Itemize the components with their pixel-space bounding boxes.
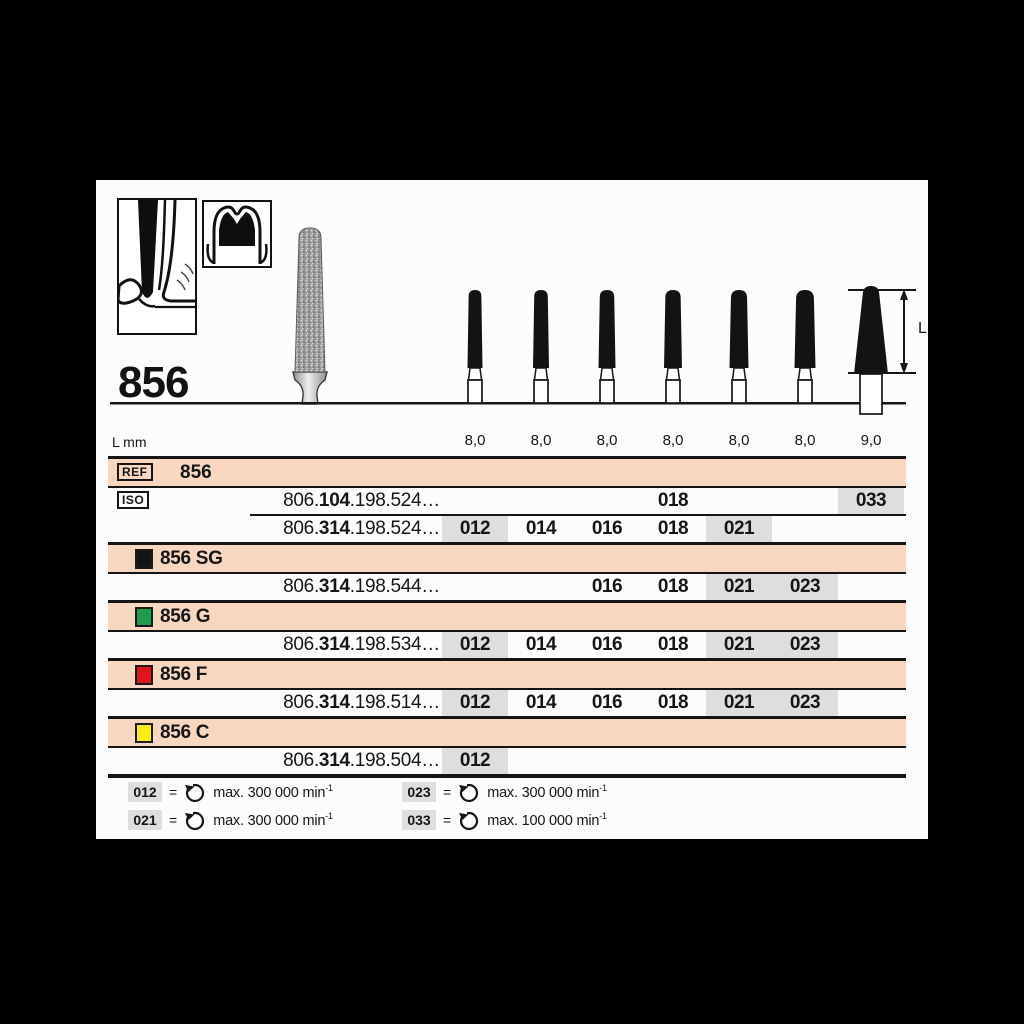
- size-cell: 016: [574, 516, 640, 542]
- size-cell: 033: [838, 488, 904, 514]
- iso-row-534: 806.314.198.534… 012 014 016 018 021 023: [108, 632, 906, 658]
- size-table: REF 856 ISO 806.104.198.524… 018 033 806…: [108, 456, 906, 778]
- variant-name: 856 F: [160, 664, 207, 686]
- iso-code: 806.314.198.504…: [208, 750, 440, 772]
- size-cell: 016: [574, 574, 640, 600]
- size-chip: 023: [402, 782, 436, 802]
- iso-code: 806.314.198.534…: [208, 634, 440, 656]
- legend-item-023: 023 = max. 300 000 min-1: [402, 780, 607, 804]
- catalog-page: L 856 L mm 8,0 8,0 8,0 8,0 8,0 8,0 9,0 R…: [96, 180, 928, 839]
- size-cell: 018: [640, 632, 706, 658]
- catalog-scan: L 856 L mm 8,0 8,0 8,0 8,0 8,0 8,0 9,0 R…: [0, 0, 1024, 1024]
- size-chip: 012: [128, 782, 162, 802]
- variant-name: 856 SG: [160, 548, 223, 570]
- size-cell: 018: [640, 516, 706, 542]
- size-cell: 021: [706, 574, 772, 600]
- length-value: 8,0: [706, 432, 772, 449]
- speed-text: max. 100 000 min-1: [487, 811, 607, 829]
- ref-tag: REF: [117, 463, 153, 481]
- length-value: 8,0: [508, 432, 574, 449]
- size-cell: 023: [772, 574, 838, 600]
- iso-code: 806.314.198.514…: [208, 692, 440, 714]
- iso-code: 806.104.198.524…: [208, 490, 440, 512]
- size-cell: 018: [640, 574, 706, 600]
- speed-text: max. 300 000 min-1: [213, 783, 333, 801]
- speed-text: max. 300 000 min-1: [487, 783, 607, 801]
- length-value: 9,0: [838, 432, 904, 449]
- length-row-label: L mm: [112, 434, 146, 450]
- length-dimension-label: L: [918, 320, 927, 338]
- grit-color-square-green: [135, 607, 153, 627]
- size-silhouettes: [96, 180, 928, 420]
- rotation-speed-icon: [184, 781, 206, 803]
- size-cell: 014: [508, 516, 574, 542]
- product-number-title: 856: [118, 358, 188, 408]
- variant-band-856c: 856 C: [108, 719, 906, 746]
- iso-row-544: 806.314.198.544… 016 018 021 023: [108, 574, 906, 600]
- size-cell: 021: [706, 516, 772, 542]
- length-value: 8,0: [772, 432, 838, 449]
- size-cell: 021: [706, 690, 772, 716]
- grit-color-square-black: [135, 549, 153, 569]
- size-cell: 023: [772, 690, 838, 716]
- iso-tag: ISO: [117, 491, 149, 509]
- rotation-speed-icon: [458, 781, 480, 803]
- size-cell: 012: [442, 632, 508, 658]
- size-cell: 018: [640, 488, 706, 514]
- length-value: 8,0: [574, 432, 640, 449]
- legend-item-021: 021 = max. 300 000 min-1: [128, 808, 333, 832]
- iso-code: 806.314.198.544…: [208, 576, 440, 598]
- legend-item-033: 033 = max. 100 000 min-1: [402, 808, 607, 832]
- size-cell: 018: [640, 690, 706, 716]
- size-cell: 012: [442, 690, 508, 716]
- equals-sign: =: [169, 784, 177, 800]
- iso-row-504: 806.314.198.504… 012: [108, 748, 906, 774]
- ref-band: REF 856: [108, 459, 906, 486]
- equals-sign: =: [443, 784, 451, 800]
- size-cell: 023: [772, 632, 838, 658]
- iso-row-514: 806.314.198.514… 012 014 016 018 021 023: [108, 690, 906, 716]
- size-cell: 016: [574, 690, 640, 716]
- iso-row-104: ISO 806.104.198.524… 018 033: [108, 488, 906, 514]
- divider: [108, 774, 906, 778]
- size-cell: 021: [706, 632, 772, 658]
- equals-sign: =: [443, 812, 451, 828]
- rotation-speed-icon: [458, 809, 480, 831]
- variant-name: 856 G: [160, 606, 210, 628]
- variant-name: 856 C: [160, 722, 209, 744]
- equals-sign: =: [169, 812, 177, 828]
- grit-color-square-yellow: [135, 723, 153, 743]
- size-cell: 016: [574, 632, 640, 658]
- size-cell: 014: [508, 632, 574, 658]
- variant-band-856f: 856 F: [108, 661, 906, 688]
- size-cell: 014: [508, 690, 574, 716]
- iso-code: 806.314.198.524…: [208, 518, 440, 540]
- iso-row-314: 806.314.198.524… 012 014 016 018 021: [108, 516, 906, 542]
- rotation-speed-icon: [184, 809, 206, 831]
- speed-text: max. 300 000 min-1: [213, 811, 333, 829]
- legend-item-012: 012 = max. 300 000 min-1: [128, 780, 333, 804]
- size-chip: 033: [402, 810, 436, 830]
- size-chip: 021: [128, 810, 162, 830]
- variant-band-856sg: 856 SG: [108, 545, 906, 572]
- size-cell: 012: [442, 748, 508, 774]
- length-value: 8,0: [442, 432, 508, 449]
- variant-band-856g: 856 G: [108, 603, 906, 630]
- grit-color-square-red: [135, 665, 153, 685]
- length-value: 8,0: [640, 432, 706, 449]
- ref-value: 856: [180, 462, 212, 484]
- size-cell: 012: [442, 516, 508, 542]
